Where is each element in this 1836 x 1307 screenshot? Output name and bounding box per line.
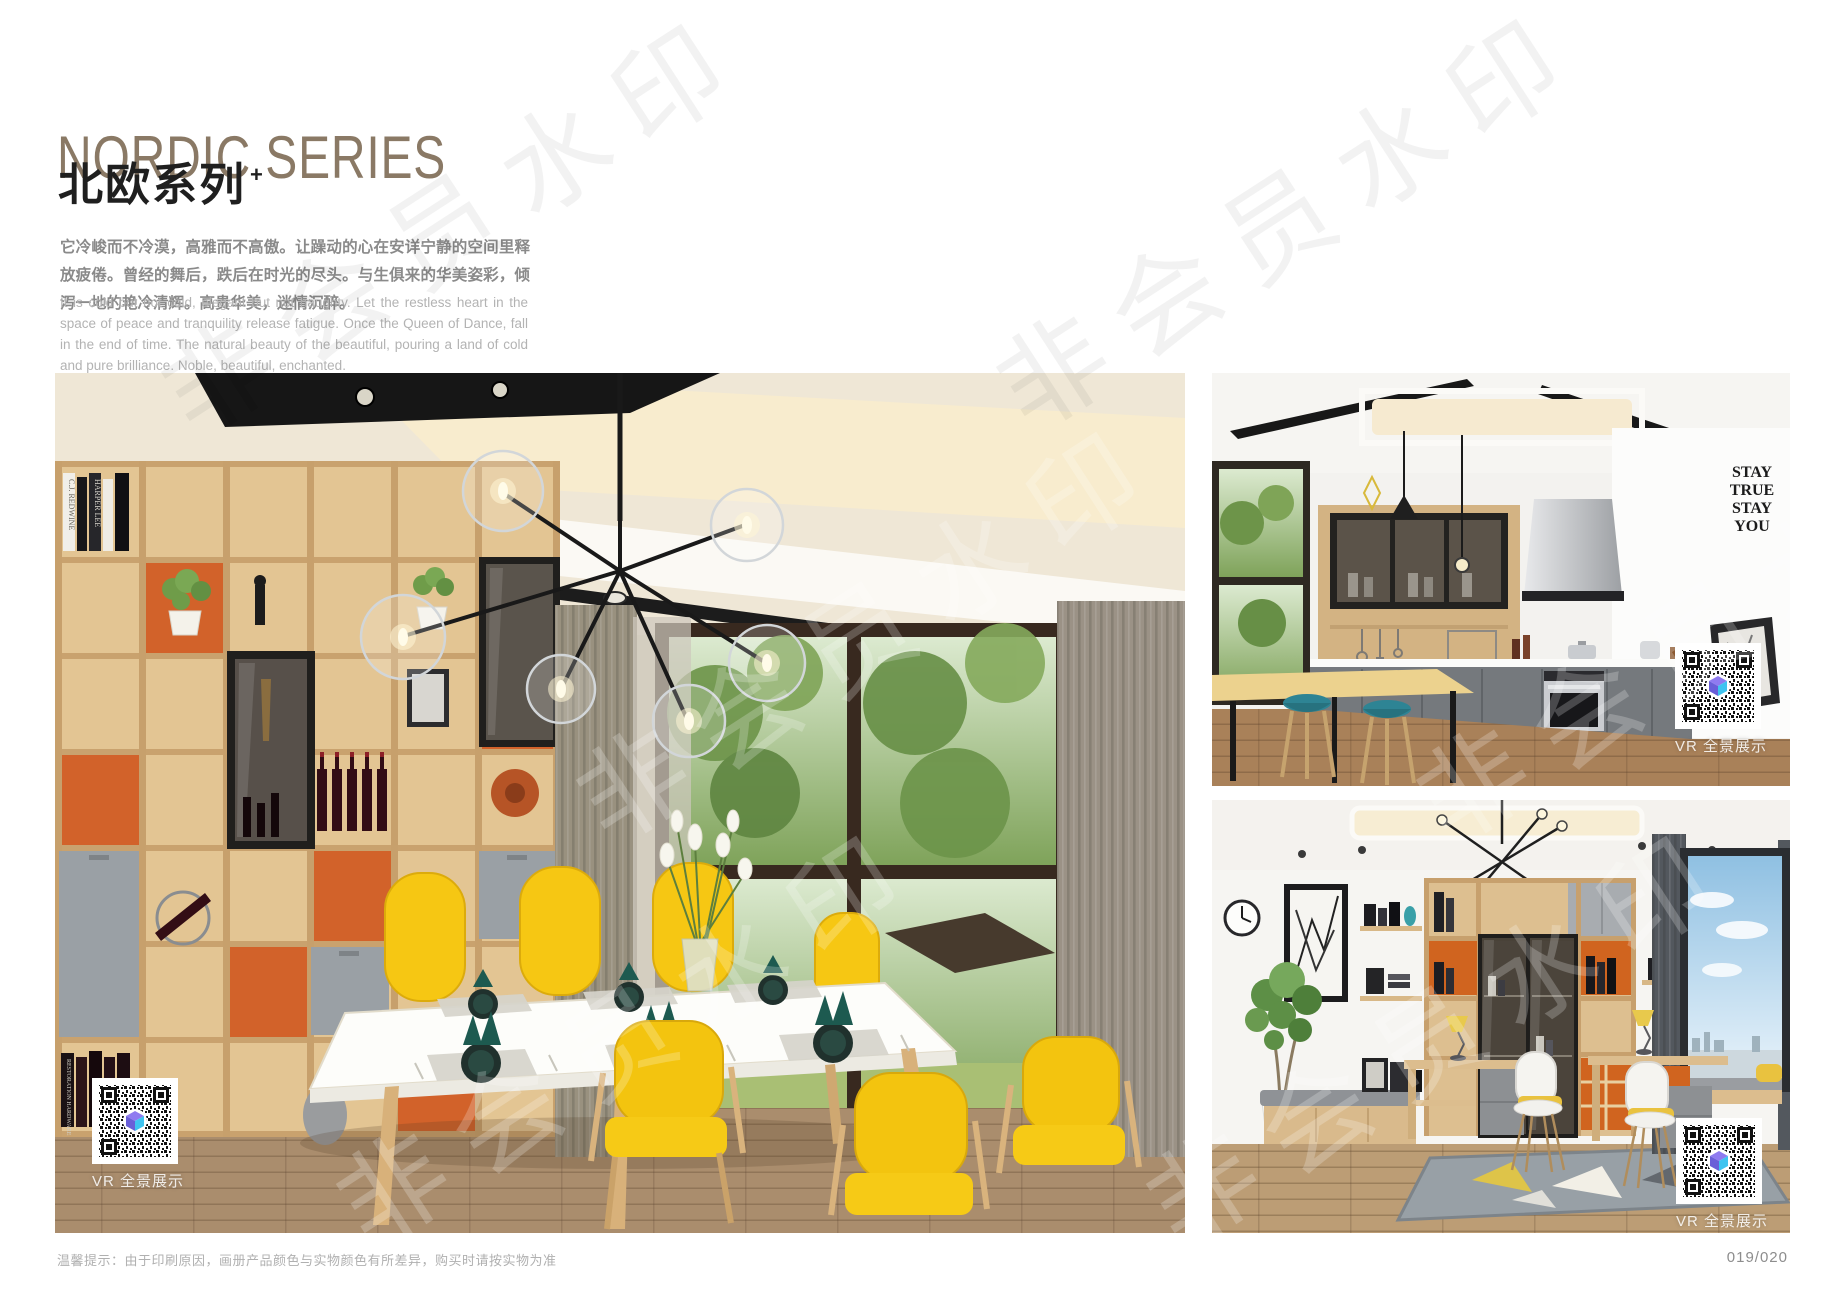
ceiling-cove-glow — [1352, 808, 1642, 838]
vr-label: VR 全景展示 — [1676, 1210, 1762, 1231]
dining-room-scene: C.J. REDWINE HARPER LEE RESTORATION HARD… — [55, 373, 1185, 1233]
vr-qr-block: VR 全景展示 — [1676, 1118, 1762, 1231]
page-number: 019/020 — [1727, 1249, 1788, 1266]
range-hood — [1522, 499, 1624, 601]
title-cn-text: 北欧系列 — [58, 159, 246, 210]
vr-qr-block: VR 全景展示 — [92, 1078, 178, 1191]
book-spine-text: C.J. REDWINE — [67, 479, 76, 530]
vr-label: VR 全景展示 — [1675, 735, 1761, 756]
catalog-page: NORDIC SERIES 北欧系列+ 它冷峻而不冷漠，高雅而不高傲。让躁动的心… — [0, 0, 1836, 1307]
wall-art-line: STAY — [1732, 500, 1772, 517]
dining-room-photo: C.J. REDWINE HARPER LEE RESTORATION HARD… — [55, 373, 1185, 1233]
qr-code — [92, 1078, 178, 1164]
book-spine-text: RESTORATION HARDWARE — [65, 1059, 71, 1136]
window — [1212, 461, 1310, 705]
wall-art-text: STAY TRUE STAY YOU — [1730, 464, 1774, 535]
wall-art-line: STAY — [1732, 464, 1772, 481]
book-spine-text: HARPER LEE — [93, 479, 102, 527]
cubby-grid — [1581, 1058, 1631, 1130]
intro-paragraph-english: It is cold but not cold, elegant but not… — [60, 292, 528, 376]
built-in-oven — [1544, 671, 1604, 731]
window — [1680, 848, 1790, 1092]
title-plus-mark: + — [250, 162, 265, 187]
wall-art-line: TRUE — [1730, 482, 1774, 499]
vr-qr-block: VR 全景展示 — [1675, 643, 1761, 756]
print-disclaimer: 温馨提示：由于印刷原因，画册产品颜色与实物颜色有所差异，购买时请按实物为准 — [57, 1250, 557, 1269]
ceiling-cove-glow — [1372, 399, 1632, 435]
kitchen-photo: STAY TRUE STAY YOU — [1212, 373, 1790, 786]
page-title-chinese: 北欧系列+ — [58, 150, 265, 210]
wall-art-line: YOU — [1734, 518, 1770, 535]
qr-code — [1675, 643, 1761, 729]
glass-upper-cabinet — [1330, 513, 1508, 609]
vr-label: VR 全景展示 — [92, 1170, 178, 1191]
books-top-shelf: C.J. REDWINE HARPER LEE — [63, 473, 129, 551]
qr-code — [1676, 1118, 1762, 1204]
wall-clock — [1225, 901, 1259, 935]
study-room-photo: VR 全景展示 — [1212, 800, 1790, 1233]
